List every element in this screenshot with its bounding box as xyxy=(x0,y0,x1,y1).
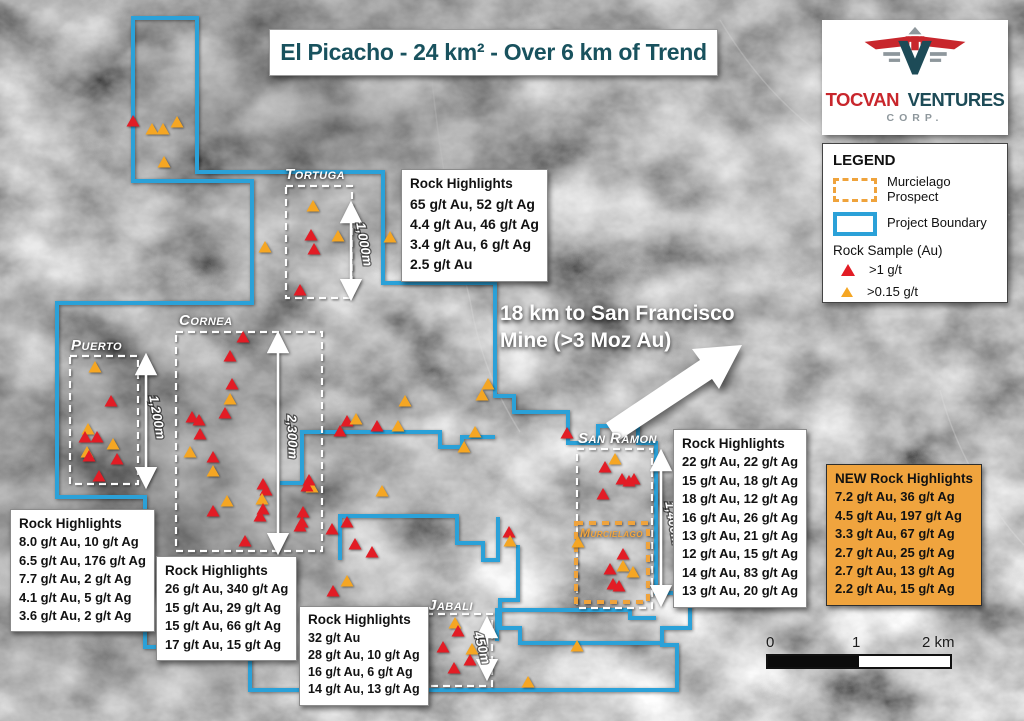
highlight-line: 16 g/t Au, 6 g/t Ag xyxy=(308,664,420,681)
distance-annotation: 18 km to San Francisco Mine (>3 Moz Au) xyxy=(500,300,735,355)
highlight-title: Rock Highlights xyxy=(308,611,420,630)
highlight-line: 13 g/t Au, 20 g/t Ag xyxy=(682,582,798,600)
rock-sample-low-grade xyxy=(224,393,237,405)
rock-sample-high-grade xyxy=(226,378,239,390)
rock-sample-low-grade xyxy=(157,123,170,135)
scale-bar-rule xyxy=(766,654,952,669)
highlight-line: 4.1 g/t Au, 5 g/t Ag xyxy=(19,589,146,607)
rock-sample-low-grade xyxy=(384,231,397,243)
legend-high-grade-label: >1 g/t xyxy=(869,263,902,278)
company-corp-label: CORP. xyxy=(822,112,1008,124)
highlight-line: 15 g/t Au, 66 g/t Ag xyxy=(165,617,288,635)
map-canvas: 1,000m 2,300m 1,200m 1,400m 450m Tortuga… xyxy=(0,0,1024,721)
measure-label-puerto: 1,200m xyxy=(146,394,169,440)
map-title-banner: El Picacho - 24 km² - Over 6 km of Trend xyxy=(269,29,718,76)
scale-tick-1: 1 xyxy=(852,634,860,651)
company-name: TOCVAN VENTURES xyxy=(822,89,1008,111)
rock-sample-low-grade xyxy=(158,156,171,168)
highlight-title: Rock Highlights xyxy=(165,561,288,580)
rock-sample-low-grade xyxy=(259,241,272,253)
legend-item-boundary: Project Boundary xyxy=(833,212,997,236)
rock-sample-high-grade xyxy=(224,350,237,362)
company-name-word1: TOCVAN xyxy=(826,89,899,110)
rock-sample-low-grade xyxy=(89,361,102,373)
legend-low-grade-label: >0.15 g/t xyxy=(867,285,918,300)
rock-sample-high-grade xyxy=(93,470,106,482)
company-logo-card: TOCVAN VENTURES CORP. xyxy=(822,20,1008,135)
zone-label-san-ramon: San Ramon xyxy=(578,430,657,447)
boundary-segment xyxy=(280,432,495,483)
legend-rock-sample-heading: Rock Sample (Au) xyxy=(833,243,997,258)
rock-sample-high-grade xyxy=(617,548,630,560)
murcielago-prospect-swatch xyxy=(833,178,877,202)
legend-item-low-grade: >0.15 g/t xyxy=(833,285,997,300)
rock-highlights-jabali: Rock Highlights 32 g/t Au28 g/t Au, 10 g… xyxy=(299,606,429,706)
highlight-title: NEW Rock Highlights xyxy=(835,469,973,488)
zone-label-jabali: Jabali xyxy=(428,597,473,614)
highlight-line: 65 g/t Au, 52 g/t Ag xyxy=(410,194,539,214)
rock-highlights-new: NEW Rock Highlights 7.2 g/t Au, 36 g/t A… xyxy=(826,464,982,606)
rock-sample-low-grade xyxy=(449,617,462,629)
rock-sample-low-grade xyxy=(482,378,495,390)
rock-highlights-cornea: Rock Highlights 26 g/t Au, 340 g/t Ag15 … xyxy=(156,556,297,661)
rock-sample-high-grade xyxy=(194,428,207,440)
rock-sample-high-grade xyxy=(219,407,232,419)
rock-sample-high-grade xyxy=(371,420,384,432)
rock-sample-high-grade xyxy=(349,538,362,550)
rock-highlights-tortuga: Rock Highlights 65 g/t Au, 52 g/t Ag4.4 … xyxy=(401,169,548,282)
highlight-line: 4.5 g/t Au, 197 g/t Ag xyxy=(835,507,973,525)
highlight-line: 17 g/t Au, 15 g/t Ag xyxy=(165,636,288,654)
highlight-line: 28 g/t Au, 10 g/t Ag xyxy=(308,647,420,664)
rock-sample-low-grade xyxy=(350,413,363,425)
scale-bar: 0 1 2 km xyxy=(766,634,956,669)
rock-sample-low-grade xyxy=(171,116,184,128)
scale-tick-0: 0 xyxy=(766,634,774,651)
highlight-line: 3.6 g/t Au, 2 g/t Ag xyxy=(19,607,146,625)
map-title: El Picacho - 24 km² - Over 6 km of Trend xyxy=(280,39,706,66)
zone-box-tortuga xyxy=(286,186,352,298)
rock-sample-high-grade xyxy=(305,229,318,241)
scale-bar-ticks: 0 1 2 km xyxy=(766,634,956,652)
rock-sample-high-grade xyxy=(326,523,339,535)
highlight-line: 7.2 g/t Au, 36 g/t Ag xyxy=(835,488,973,506)
zone-label-tortuga: Tortuga xyxy=(285,166,345,183)
direction-arrow xyxy=(606,345,742,441)
highlight-line: 16 g/t Au, 26 g/t Ag xyxy=(682,509,798,527)
zone-label-puerto: Puerto xyxy=(71,337,122,354)
legend-heading: LEGEND xyxy=(833,152,997,169)
orange-triangle-icon xyxy=(841,287,853,297)
red-triangle-icon xyxy=(841,264,855,276)
distance-annotation-line2: Mine (>3 Moz Au) xyxy=(500,327,735,354)
highlight-line: 12 g/t Au, 15 g/t Ag xyxy=(682,545,798,563)
boundary-segment xyxy=(500,545,662,643)
highlight-line: 6.5 g/t Au, 176 g/t Ag xyxy=(19,552,146,570)
rock-sample-low-grade xyxy=(627,566,640,578)
tocvan-logo-icon xyxy=(855,26,975,82)
rock-sample-low-grade xyxy=(469,426,482,438)
highlight-line: 14 g/t Au, 83 g/t Ag xyxy=(682,564,798,582)
rock-sample-high-grade xyxy=(105,395,118,407)
highlight-line: 15 g/t Au, 18 g/t Ag xyxy=(682,472,798,490)
rock-sample-low-grade xyxy=(107,438,120,450)
zone-box-puerto xyxy=(70,356,138,484)
highlight-line: 8.0 g/t Au, 10 g/t Ag xyxy=(19,533,146,551)
rock-sample-high-grade xyxy=(503,526,516,538)
scale-tick-2: 2 km xyxy=(922,634,955,651)
rock-sample-low-grade xyxy=(146,123,159,135)
rock-sample-low-grade xyxy=(617,560,630,572)
legend-boundary-label: Project Boundary xyxy=(887,216,987,231)
legend-item-murcielago: Murcielago Prospect xyxy=(833,175,997,205)
rock-sample-low-grade xyxy=(376,485,389,497)
rock-sample-low-grade xyxy=(392,420,405,432)
boundary-segment xyxy=(340,516,498,560)
company-name-word2: VENTURES xyxy=(908,89,1005,110)
rock-sample-high-grade xyxy=(297,506,310,518)
project-boundary-swatch xyxy=(833,212,877,236)
measure-label-tortuga: 1,000m xyxy=(353,221,376,267)
rock-sample-low-grade xyxy=(341,575,354,587)
highlight-line: 4.4 g/t Au, 46 g/t Ag xyxy=(410,214,539,234)
highlight-line: 3.4 g/t Au, 6 g/t Ag xyxy=(410,234,539,254)
highlight-title: Rock Highlights xyxy=(410,174,539,194)
rock-sample-low-grade xyxy=(522,676,535,688)
highlight-line: 2.2 g/t Au, 15 g/t Ag xyxy=(835,580,973,598)
highlight-line: 26 g/t Au, 340 g/t Ag xyxy=(165,580,288,598)
highlight-line: 7.7 g/t Au, 2 g/t Ag xyxy=(19,570,146,588)
rock-sample-high-grade xyxy=(341,415,354,427)
highlight-title: Rock Highlights xyxy=(682,434,798,453)
rock-sample-low-grade xyxy=(476,389,489,401)
rock-sample-high-grade xyxy=(437,641,450,653)
rock-sample-low-grade xyxy=(221,495,234,507)
highlight-line: 18 g/t Au, 12 g/t Ag xyxy=(682,490,798,508)
highlight-line: 2.7 g/t Au, 25 g/t Ag xyxy=(835,544,973,562)
rock-highlights-san-ramon: Rock Highlights 22 g/t Au, 22 g/t Ag15 g… xyxy=(673,429,807,608)
highlight-line: 13 g/t Au, 21 g/t Ag xyxy=(682,527,798,545)
highlight-title: Rock Highlights xyxy=(19,514,146,533)
rock-sample-high-grade xyxy=(207,451,220,463)
highlight-line: 32 g/t Au xyxy=(308,630,420,647)
zone-label-murcielago: Murcielago xyxy=(580,526,643,540)
scale-bar-white-half xyxy=(859,656,950,667)
rock-sample-high-grade xyxy=(604,563,617,575)
rock-sample-high-grade xyxy=(294,284,307,296)
rock-sample-low-grade xyxy=(332,230,345,242)
legend-murcielago-label: Murcielago Prospect xyxy=(887,175,983,205)
rock-sample-high-grade xyxy=(597,488,610,500)
legend: LEGEND Murcielago Prospect Project Bound… xyxy=(822,143,1008,303)
highlight-line: 3.3 g/t Au, 67 g/t Ag xyxy=(835,525,973,543)
rock-sample-high-grade xyxy=(308,243,321,255)
rock-sample-high-grade xyxy=(448,662,461,674)
distance-annotation-line1: 18 km to San Francisco xyxy=(500,300,735,327)
highlight-line: 22 g/t Au, 22 g/t Ag xyxy=(682,453,798,471)
rock-sample-high-grade xyxy=(207,505,220,517)
rock-sample-high-grade xyxy=(239,535,252,547)
rock-highlights-puerto: Rock Highlights 8.0 g/t Au, 10 g/t Ag6.5… xyxy=(10,509,155,632)
measure-label-cornea: 2,300m xyxy=(284,414,301,460)
highlight-line: 2.7 g/t Au, 13 g/t Ag xyxy=(835,562,973,580)
rock-sample-low-grade xyxy=(609,453,622,465)
scale-bar-black-half xyxy=(768,656,859,667)
rock-sample-low-grade xyxy=(184,446,197,458)
rock-sample-low-grade xyxy=(399,395,412,407)
rock-sample-low-grade xyxy=(207,465,220,477)
rock-sample-high-grade xyxy=(111,453,124,465)
zone-label-cornea: Cornea xyxy=(179,312,233,329)
highlight-line: 2.5 g/t Au xyxy=(410,254,539,274)
highlight-line: 15 g/t Au, 29 g/t Ag xyxy=(165,599,288,617)
highlight-line: 14 g/t Au, 13 g/t Ag xyxy=(308,681,420,698)
rock-sample-high-grade xyxy=(561,427,574,439)
rock-sample-high-grade xyxy=(464,654,477,666)
rock-sample-low-grade xyxy=(82,423,95,435)
legend-item-high-grade: >1 g/t xyxy=(833,263,997,278)
rock-sample-high-grade xyxy=(327,585,340,597)
rock-sample-low-grade xyxy=(307,200,320,212)
rock-sample-high-grade xyxy=(366,546,379,558)
rock-sample-high-grade xyxy=(127,115,140,127)
